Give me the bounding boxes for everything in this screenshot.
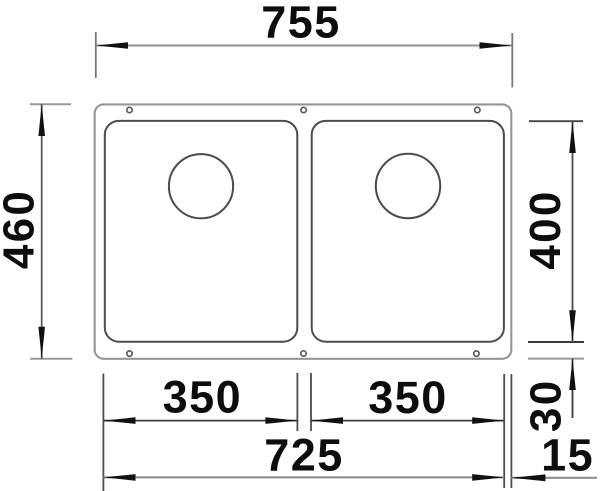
svg-text:15: 15 bbox=[541, 430, 594, 481]
svg-text:350: 350 bbox=[163, 372, 243, 423]
svg-text:400: 400 bbox=[521, 189, 570, 269]
svg-text:30: 30 bbox=[522, 379, 571, 433]
svg-text:755: 755 bbox=[261, 0, 341, 48]
svg-text:350: 350 bbox=[368, 372, 448, 423]
svg-text:725: 725 bbox=[264, 430, 344, 481]
svg-text:460: 460 bbox=[0, 189, 44, 269]
